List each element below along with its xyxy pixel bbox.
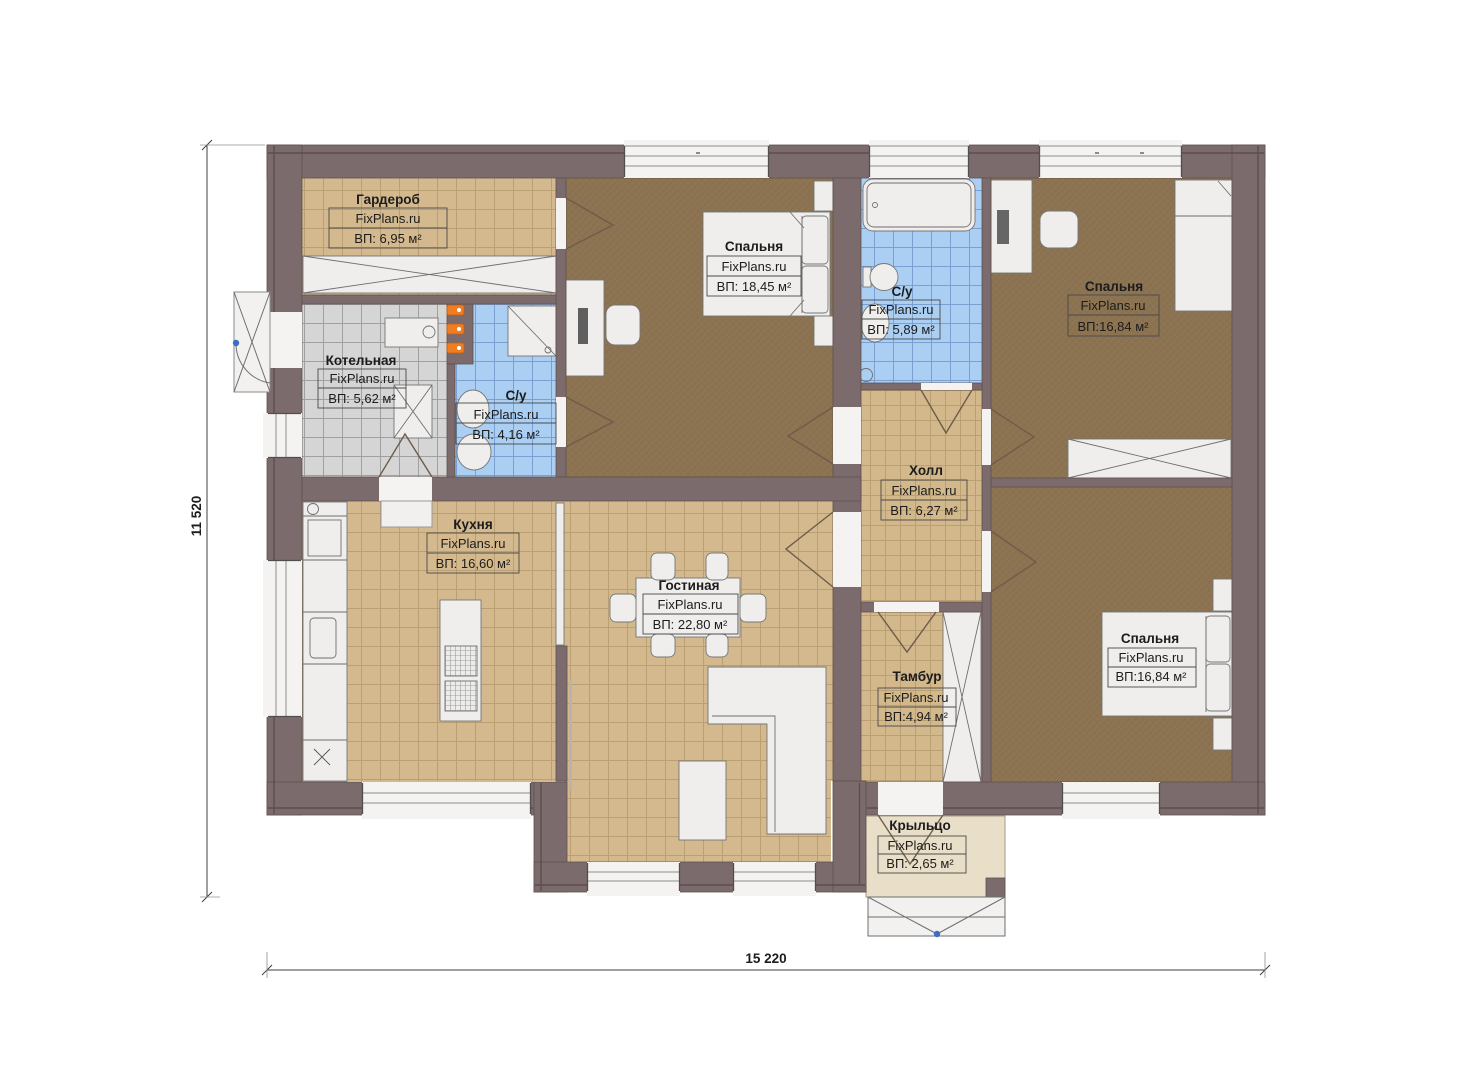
svg-text:ВП: 5,89 м²: ВП: 5,89 м² [867,322,935,337]
svg-text:FixPlans.ru: FixPlans.ru [721,259,786,274]
svg-text:Спальня: Спальня [1085,279,1143,294]
svg-text:Кухня: Кухня [453,517,492,532]
svg-text:ВП: 4,16 м²: ВП: 4,16 м² [472,427,540,442]
svg-text:ВП: 6,95 м²: ВП: 6,95 м² [354,231,422,246]
svg-text:ВП:16,84 м²: ВП:16,84 м² [1077,319,1149,334]
svg-text:С/у: С/у [505,388,527,403]
svg-text:Спальня: Спальня [725,239,783,254]
svg-text:ВП: 2,65 м²: ВП: 2,65 м² [886,856,954,871]
svg-text:ВП: 18,45 м²: ВП: 18,45 м² [717,279,792,294]
svg-text:FixPlans.ru: FixPlans.ru [891,483,956,498]
svg-text:FixPlans.ru: FixPlans.ru [868,302,933,317]
svg-text:FixPlans.ru: FixPlans.ru [657,597,722,612]
svg-text:Крыльцо: Крыльцо [889,818,950,833]
svg-text:FixPlans.ru: FixPlans.ru [1080,298,1145,313]
svg-text:11 520: 11 520 [189,496,204,537]
svg-text:FixPlans.ru: FixPlans.ru [887,838,952,853]
svg-text:FixPlans.ru: FixPlans.ru [355,211,420,226]
svg-text:ВП:16,84 м²: ВП:16,84 м² [1115,669,1187,684]
svg-text:FixPlans.ru: FixPlans.ru [1118,650,1183,665]
svg-text:ВП:4,94 м²: ВП:4,94 м² [884,709,948,724]
svg-text:Гардероб: Гардероб [356,192,420,207]
svg-text:FixPlans.ru: FixPlans.ru [329,371,394,386]
svg-text:FixPlans.ru: FixPlans.ru [883,690,948,705]
svg-text:Холл: Холл [909,463,943,478]
svg-text:ВП: 22,80 м²: ВП: 22,80 м² [653,617,728,632]
svg-text:ВП: 5,62 м²: ВП: 5,62 м² [328,391,396,406]
svg-text:С/у: С/у [891,284,913,299]
svg-text:FixPlans.ru: FixPlans.ru [440,536,505,551]
svg-text:Гостиная: Гостиная [658,578,719,593]
svg-text:15 220: 15 220 [745,951,786,966]
svg-text:Котельная: Котельная [326,353,397,368]
svg-text:Спальня: Спальня [1121,631,1179,646]
svg-text:Тамбур: Тамбур [893,669,942,684]
svg-text:ВП: 6,27 м²: ВП: 6,27 м² [890,503,958,518]
svg-text:FixPlans.ru: FixPlans.ru [473,407,538,422]
svg-text:ВП: 16,60 м²: ВП: 16,60 м² [436,556,511,571]
